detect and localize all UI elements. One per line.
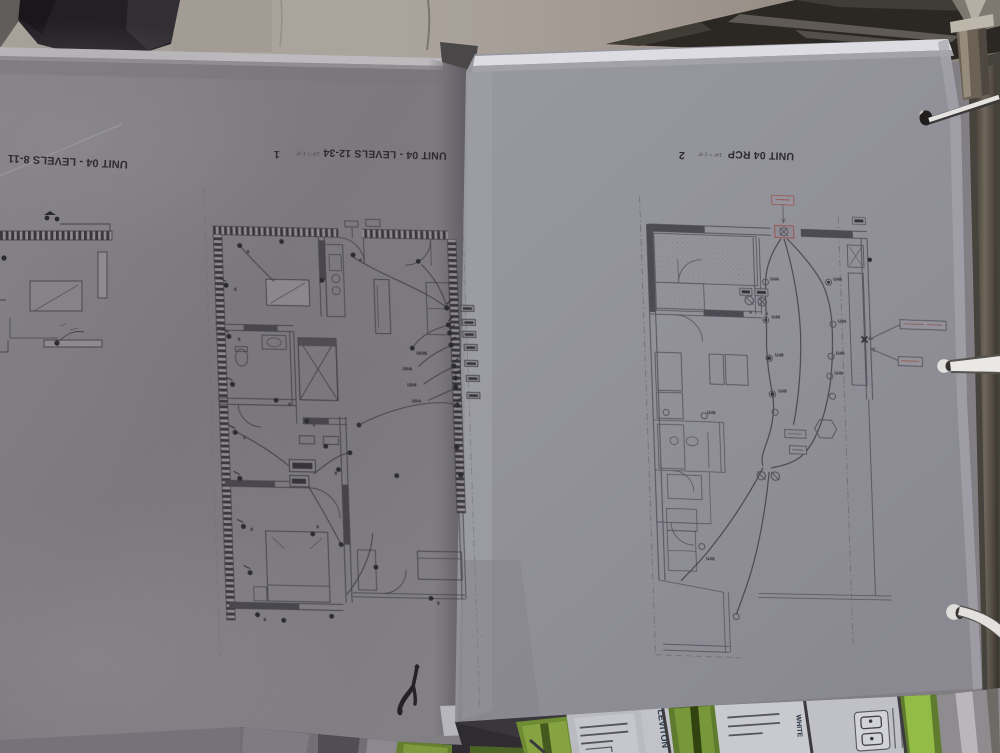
svg-text:LI-04: LI-04	[770, 277, 778, 281]
svg-text:3: 3	[766, 312, 768, 316]
svg-text:LI-02: LI-02	[706, 557, 714, 561]
svg-text:LH-11: LH-11	[416, 350, 428, 355]
svg-text:3: 3	[750, 310, 752, 314]
svg-text:LI-04: LI-04	[836, 351, 844, 355]
svg-text:2: 2	[679, 149, 685, 161]
svg-text:LI-03: LI-03	[707, 411, 715, 415]
svg-text:1: 1	[274, 148, 280, 160]
svg-text:LI-04: LI-04	[833, 277, 841, 281]
svg-text:UNIT 04 RCP: UNIT 04 RCP	[728, 148, 795, 162]
svg-text:LH-8: LH-8	[403, 366, 413, 371]
svg-text:LH-4: LH-4	[412, 398, 422, 403]
svg-text:LI-04: LI-04	[835, 371, 843, 375]
svg-text:LI-05: LI-05	[778, 389, 786, 393]
svg-text:LI-04: LI-04	[838, 320, 846, 324]
svg-text:1/4" = 1'-0": 1/4" = 1'-0"	[697, 151, 722, 158]
svg-text:LI-04: LI-04	[772, 315, 780, 319]
svg-text:1/4" = 1'-0": 1/4" = 1'-0"	[295, 150, 320, 157]
svg-text:A: A	[288, 402, 291, 407]
svg-text:LI-05: LI-05	[775, 353, 783, 357]
svg-text:LH-6: LH-6	[407, 382, 417, 387]
